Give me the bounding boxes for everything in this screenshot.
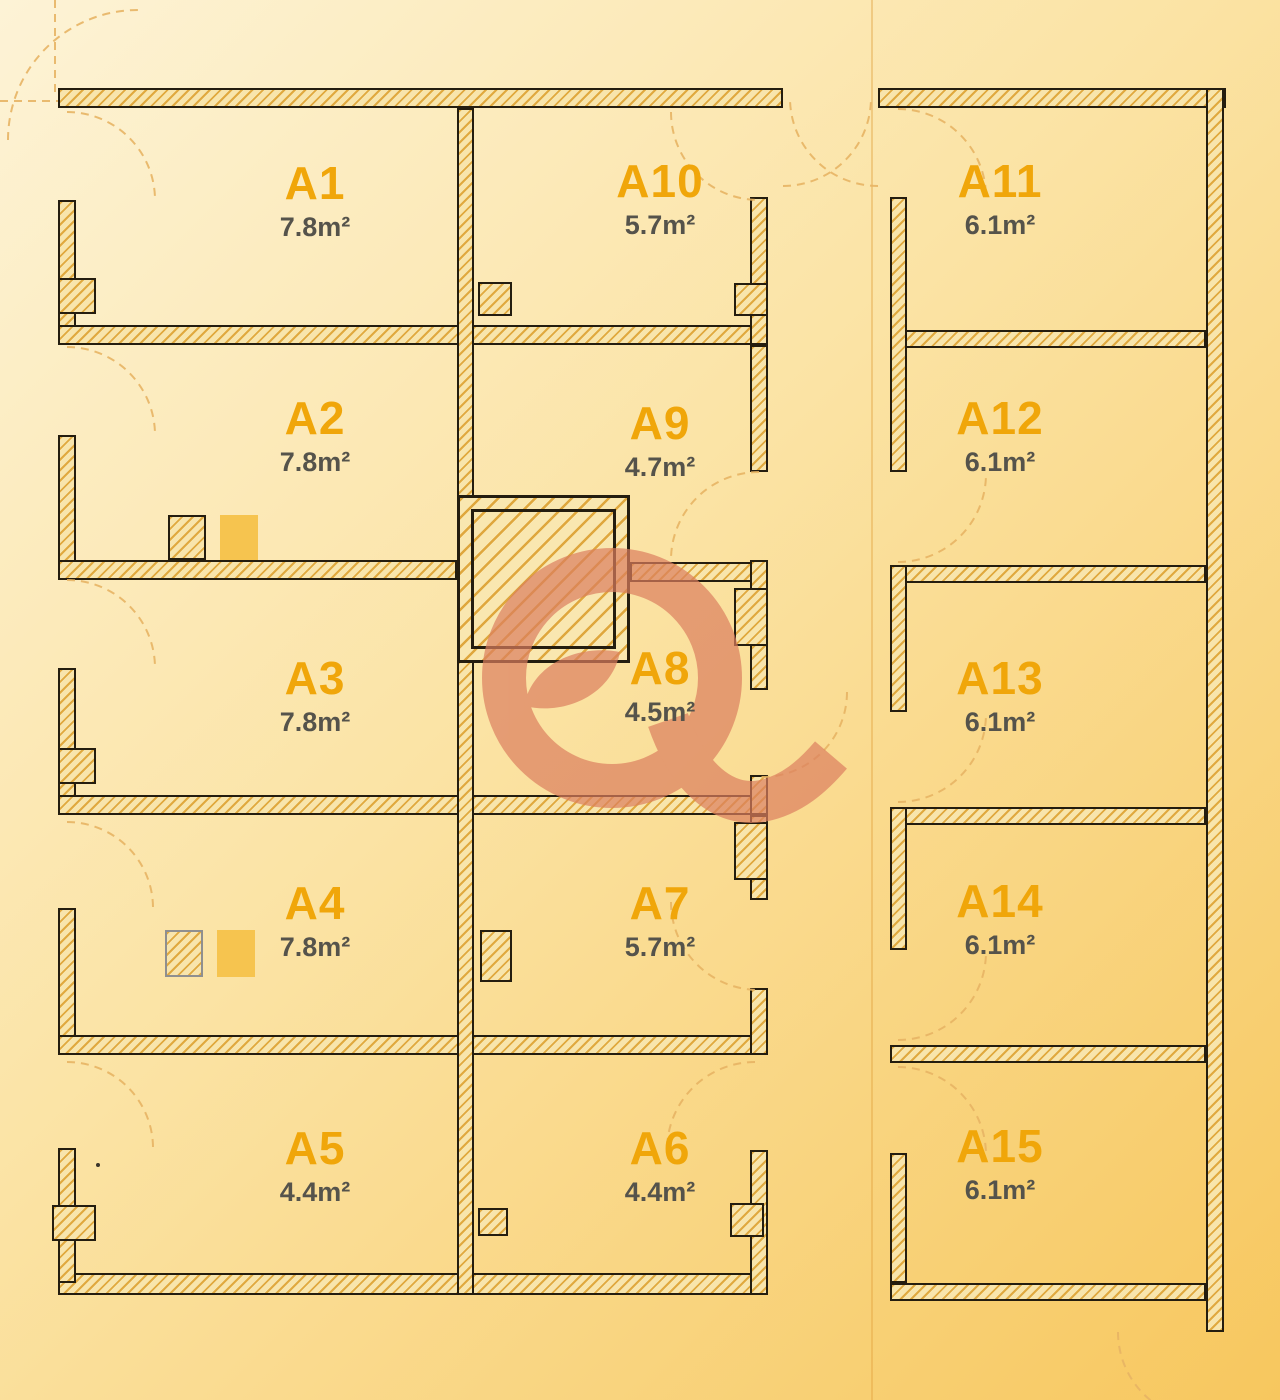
wall-divider-row2-right: [630, 562, 768, 582]
door-arc-a2: [67, 347, 155, 435]
wall-divider-row3: [58, 795, 768, 815]
column-pillar-a7-floor: [480, 930, 512, 982]
room-a5: A5 4.4m²: [205, 1125, 425, 1206]
room-a10-area: 5.7m²: [550, 212, 770, 239]
room-a14-label: A14: [890, 878, 1110, 924]
wall-divider-right-row1: [890, 330, 1206, 348]
wall-divider-row2-left: [58, 560, 457, 580]
wall-left-a2: [58, 435, 76, 562]
room-a4: A4 7.8m²: [205, 880, 425, 961]
room-a4-area: 7.8m²: [205, 934, 425, 961]
room-a14-area: 6.1m²: [890, 932, 1110, 959]
door-arc-a9: [671, 472, 759, 560]
room-a9-area: 4.7m²: [550, 454, 770, 481]
room-a12-label: A12: [890, 395, 1110, 441]
wall-divider-row1: [58, 325, 768, 345]
room-a12: A12 6.1m²: [890, 395, 1110, 476]
door-arc-a8: [759, 692, 847, 777]
guide-line: [871, 0, 873, 1400]
room-a9-label: A9: [550, 400, 770, 446]
column-pillar-a10-wall: [734, 283, 768, 316]
wall-top-right-block: [878, 88, 1226, 108]
door-arc-a14: [898, 952, 986, 1040]
elevator-shaft-inner: [471, 509, 616, 649]
room-a15: A15 6.1m²: [890, 1123, 1110, 1204]
column-pillar-a10-floor: [478, 282, 512, 316]
door-arc-a12: [898, 474, 986, 562]
column-pillar-a6-floor: [478, 1208, 508, 1236]
wall-center-vertical: [457, 108, 474, 1295]
column-pillar-a7-wall: [734, 822, 768, 880]
room-a6-area: 4.4m²: [550, 1179, 770, 1206]
room-a2-area: 7.8m²: [205, 449, 425, 476]
room-a6: A6 4.4m²: [550, 1125, 770, 1206]
room-a14: A14 6.1m²: [890, 878, 1110, 959]
room-a10: A10 5.7m²: [550, 158, 770, 239]
wall-left-a4: [58, 908, 76, 1037]
room-a8-label: A8: [550, 645, 770, 691]
floor-plan: A1 7.8m² A2 7.8m² A3 7.8m² A4 7.8m² A5 4…: [0, 0, 1280, 1400]
room-a11-label: A11: [890, 158, 1110, 204]
column-pillar-a8-wall: [734, 588, 768, 646]
door-arc-corridor-right: [790, 98, 878, 186]
wall-divider-right-row4: [890, 1045, 1206, 1063]
column-pillar-a6-wall: [730, 1203, 764, 1237]
room-a13-area: 6.1m²: [890, 709, 1110, 736]
room-a7: A7 5.7m²: [550, 880, 770, 961]
door-arc-a3: [67, 580, 155, 668]
room-a6-label: A6: [550, 1125, 770, 1171]
room-a12-area: 6.1m²: [890, 449, 1110, 476]
wall-divider-right-row2: [890, 565, 1206, 583]
door-arc-a5: [67, 1062, 153, 1148]
door-arc-a1: [67, 112, 155, 200]
room-a15-label: A15: [890, 1123, 1110, 1169]
room-a5-label: A5: [205, 1125, 425, 1171]
marker-square-a2: [220, 515, 258, 560]
room-a11: A11 6.1m²: [890, 158, 1110, 239]
room-a11-area: 6.1m²: [890, 212, 1110, 239]
column-pillar-a1: [58, 278, 96, 314]
room-a13-label: A13: [890, 655, 1110, 701]
wall-divider-row4: [58, 1035, 768, 1055]
room-a5-area: 4.4m²: [205, 1179, 425, 1206]
room-a8: A8 4.5m²: [550, 645, 770, 726]
room-a2: A2 7.8m²: [205, 395, 425, 476]
room-a13: A13 6.1m²: [890, 655, 1110, 736]
column-pillar-a4-hatched: [165, 930, 203, 977]
wall-bottom-right-block: [890, 1283, 1206, 1301]
wall-divider-right-row3: [890, 807, 1206, 825]
plan-dot: [96, 1163, 100, 1167]
room-a3-label: A3: [205, 655, 425, 701]
room-a7-label: A7: [550, 880, 770, 926]
room-a7-area: 5.7m²: [550, 934, 770, 961]
wall-top-left-block: [58, 88, 783, 108]
room-a15-area: 6.1m²: [890, 1177, 1110, 1204]
room-a9: A9 4.7m²: [550, 400, 770, 481]
room-a10-label: A10: [550, 158, 770, 204]
room-a8-area: 4.5m²: [550, 699, 770, 726]
door-arc-exit-bottom-right: [1118, 1332, 1206, 1400]
column-pillar-a5: [52, 1205, 96, 1241]
wall-outer-right: [1206, 88, 1224, 1332]
wall-corridor-a8-stub: [750, 775, 768, 815]
wall-corridor-a7-stub: [750, 988, 768, 1055]
door-arc-a4: [67, 822, 153, 908]
room-a1: A1 7.8m²: [205, 160, 425, 241]
wall-bottom-left-block: [58, 1273, 768, 1295]
door-arc-corridor-left: [783, 98, 871, 186]
room-a1-area: 7.8m²: [205, 214, 425, 241]
door-arc-entry-top-left: [8, 10, 138, 140]
room-a2-label: A2: [205, 395, 425, 441]
room-a3-area: 7.8m²: [205, 709, 425, 736]
room-a4-label: A4: [205, 880, 425, 926]
column-pillar-a2-hatched: [168, 515, 206, 560]
room-a3: A3 7.8m²: [205, 655, 425, 736]
room-a1-label: A1: [205, 160, 425, 206]
column-pillar-a3: [58, 748, 96, 784]
